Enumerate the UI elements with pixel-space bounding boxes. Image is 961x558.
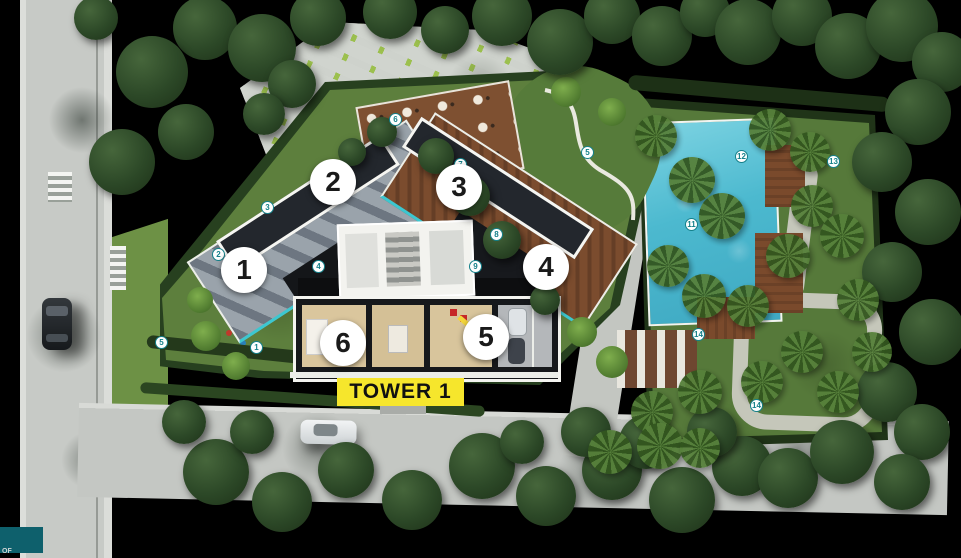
unit-markers-layer: 123456	[0, 0, 961, 558]
unit-marker-5: 5	[463, 314, 509, 360]
tower-label: TOWER 1	[337, 378, 464, 406]
unit-marker-1: 1	[221, 247, 267, 293]
unit-marker-2: 2	[310, 159, 356, 205]
unit-marker-4: 4	[523, 244, 569, 290]
unit-marker-6: 6	[320, 320, 366, 366]
corner-text: OF	[2, 548, 12, 555]
unit-marker-3: 3	[436, 164, 482, 210]
site-plan: 23516785491112131414 123456 TOWER 1 OF	[0, 0, 961, 558]
